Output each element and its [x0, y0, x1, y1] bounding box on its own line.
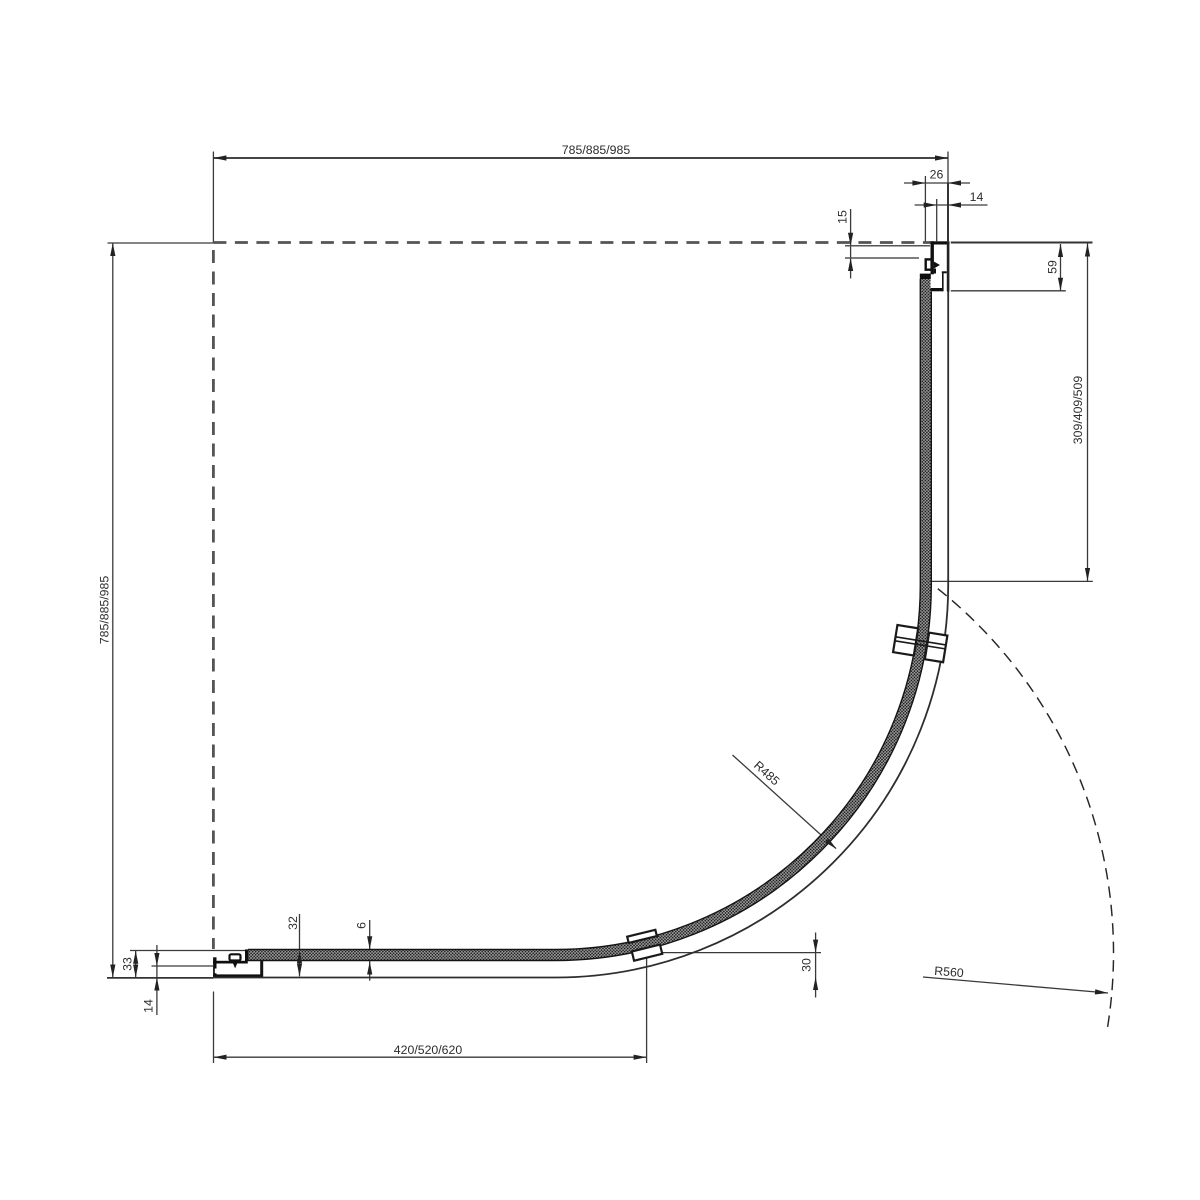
- svg-text:309/409/509: 309/409/509: [1071, 376, 1085, 445]
- svg-text:R560: R560: [934, 964, 965, 980]
- svg-text:15: 15: [836, 210, 850, 224]
- svg-text:420/520/620: 420/520/620: [394, 1043, 463, 1057]
- svg-text:26: 26: [930, 168, 944, 182]
- svg-text:6: 6: [355, 922, 369, 929]
- svg-text:59: 59: [1046, 260, 1060, 274]
- svg-text:14: 14: [970, 190, 984, 204]
- svg-text:785/885/985: 785/885/985: [98, 576, 112, 645]
- svg-text:33: 33: [121, 957, 135, 971]
- svg-text:785/885/985: 785/885/985: [562, 143, 631, 157]
- svg-text:R485: R485: [751, 758, 782, 788]
- svg-text:32: 32: [286, 916, 300, 930]
- svg-text:30: 30: [800, 958, 814, 972]
- svg-text:14: 14: [142, 999, 156, 1013]
